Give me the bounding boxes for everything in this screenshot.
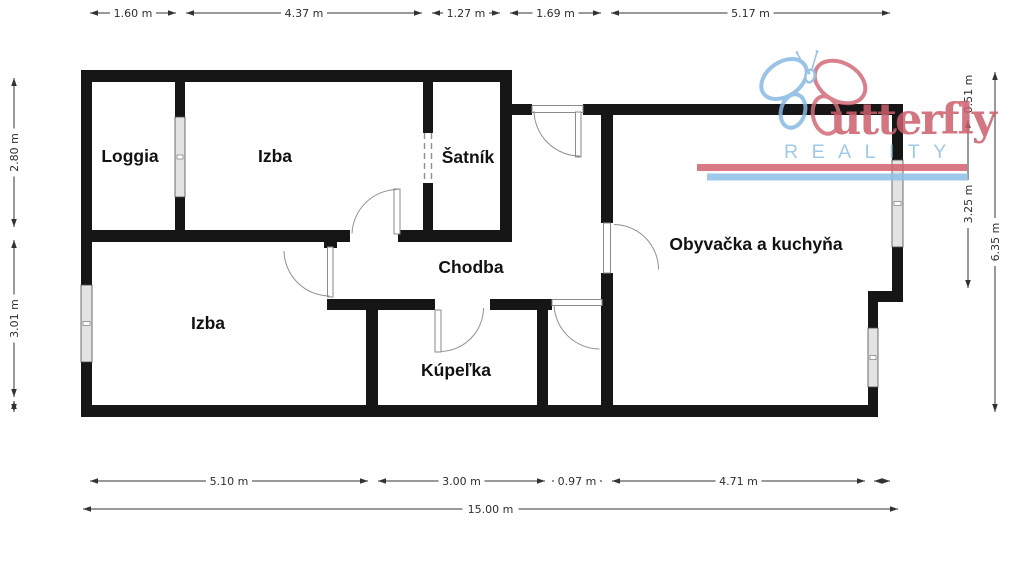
svg-text:6.35 m: 6.35 m bbox=[989, 223, 1002, 262]
watermark-logo: utterfly REALITY bbox=[697, 50, 999, 180]
dimension-bottom-1: 5.10 m bbox=[90, 475, 368, 489]
room-labels: Loggia Izba Šatník Chodba Obyvačka a kuc… bbox=[101, 146, 843, 380]
dimension-top-5: 5.17 m bbox=[611, 7, 890, 21]
svg-text:3.00 m: 3.00 m bbox=[442, 475, 481, 488]
dimension-top-1: 1.60 m bbox=[90, 7, 176, 21]
dimension-bottom-4: 4.71 m bbox=[612, 475, 865, 489]
dimension-bottom-3: 0.97 m bbox=[552, 475, 602, 489]
window bbox=[175, 117, 185, 197]
floorplan-page: Loggia Izba Šatník Chodba Obyvačka a kuc… bbox=[0, 0, 1011, 570]
brand-bar-blue bbox=[707, 174, 968, 181]
floorplan-canvas: Loggia Izba Šatník Chodba Obyvačka a kuc… bbox=[0, 0, 1011, 570]
door-kupelka bbox=[435, 308, 484, 352]
svg-text:1.27 m: 1.27 m bbox=[447, 7, 486, 20]
door-wc bbox=[552, 300, 602, 350]
room-label-chodba: Chodba bbox=[438, 257, 503, 277]
wall-segment bbox=[81, 405, 878, 417]
svg-text:0.97 m: 0.97 m bbox=[558, 475, 597, 488]
room-label-satnik: Šatník bbox=[442, 146, 495, 167]
wall-segment bbox=[868, 291, 903, 302]
svg-text:1.69 m: 1.69 m bbox=[536, 7, 575, 20]
wall-segment bbox=[81, 70, 92, 285]
svg-text:5.17 m: 5.17 m bbox=[731, 7, 770, 20]
wall-segment bbox=[423, 183, 433, 242]
wall-segment bbox=[398, 230, 512, 242]
wall-segment bbox=[490, 299, 552, 310]
dimension-right-2: 3.25 m bbox=[962, 120, 976, 288]
wall-segment bbox=[366, 299, 378, 405]
dimension-left-2: 3.01 m bbox=[8, 240, 22, 397]
door-living-room bbox=[604, 223, 659, 273]
wall-segment bbox=[81, 70, 512, 82]
dimension-bottom-total: 15.00 m bbox=[83, 503, 898, 517]
window bbox=[868, 328, 878, 387]
wall-segment bbox=[601, 273, 613, 405]
svg-text:4.37 m: 4.37 m bbox=[285, 7, 324, 20]
svg-text:15.00 m: 15.00 m bbox=[468, 503, 514, 516]
wall-segment bbox=[423, 82, 433, 133]
wall-segment bbox=[512, 104, 532, 115]
brand-subtitle: REALITY bbox=[784, 141, 960, 163]
dimension-top-3: 1.27 m bbox=[432, 7, 500, 21]
room-label-izba-bottom: Izba bbox=[191, 313, 225, 333]
window bbox=[81, 285, 92, 362]
entrance-door bbox=[532, 106, 583, 158]
dimension-bottom-2: 3.00 m bbox=[378, 475, 545, 489]
svg-text:2.80 m: 2.80 m bbox=[8, 133, 21, 172]
brand-wordmark: utterfly bbox=[830, 95, 999, 145]
svg-text:3.01 m: 3.01 m bbox=[8, 299, 21, 338]
door-izba-bottom bbox=[284, 247, 333, 297]
wall-segment bbox=[601, 115, 613, 223]
dimension-left-1: 2.80 m bbox=[8, 78, 22, 227]
room-label-izba-top: Izba bbox=[258, 146, 292, 166]
dimension-top-4: 1.69 m bbox=[510, 7, 601, 21]
wall-segment bbox=[500, 70, 512, 242]
svg-text:4.71 m: 4.71 m bbox=[719, 475, 758, 488]
wall-segment bbox=[537, 310, 548, 405]
wall-segment bbox=[868, 387, 878, 417]
dimension-top-2: 4.37 m bbox=[186, 7, 422, 21]
room-label-obyvacka: Obyvačka a kuchyňa bbox=[669, 234, 842, 254]
wall-segment bbox=[327, 299, 435, 310]
wall-opening-dashed bbox=[423, 133, 433, 183]
wall-segment bbox=[868, 302, 878, 328]
room-label-kupelka: Kúpeľka bbox=[421, 360, 491, 380]
svg-text:1.60 m: 1.60 m bbox=[114, 7, 153, 20]
svg-text:3.25 m: 3.25 m bbox=[962, 185, 975, 224]
door-izba-top bbox=[352, 189, 400, 234]
wall-segment bbox=[81, 230, 350, 242]
wall-segment bbox=[175, 82, 185, 117]
svg-text:5.10 m: 5.10 m bbox=[210, 475, 249, 488]
brand-bar-pink bbox=[697, 164, 967, 171]
room-label-loggia: Loggia bbox=[101, 146, 159, 166]
window bbox=[892, 160, 903, 247]
